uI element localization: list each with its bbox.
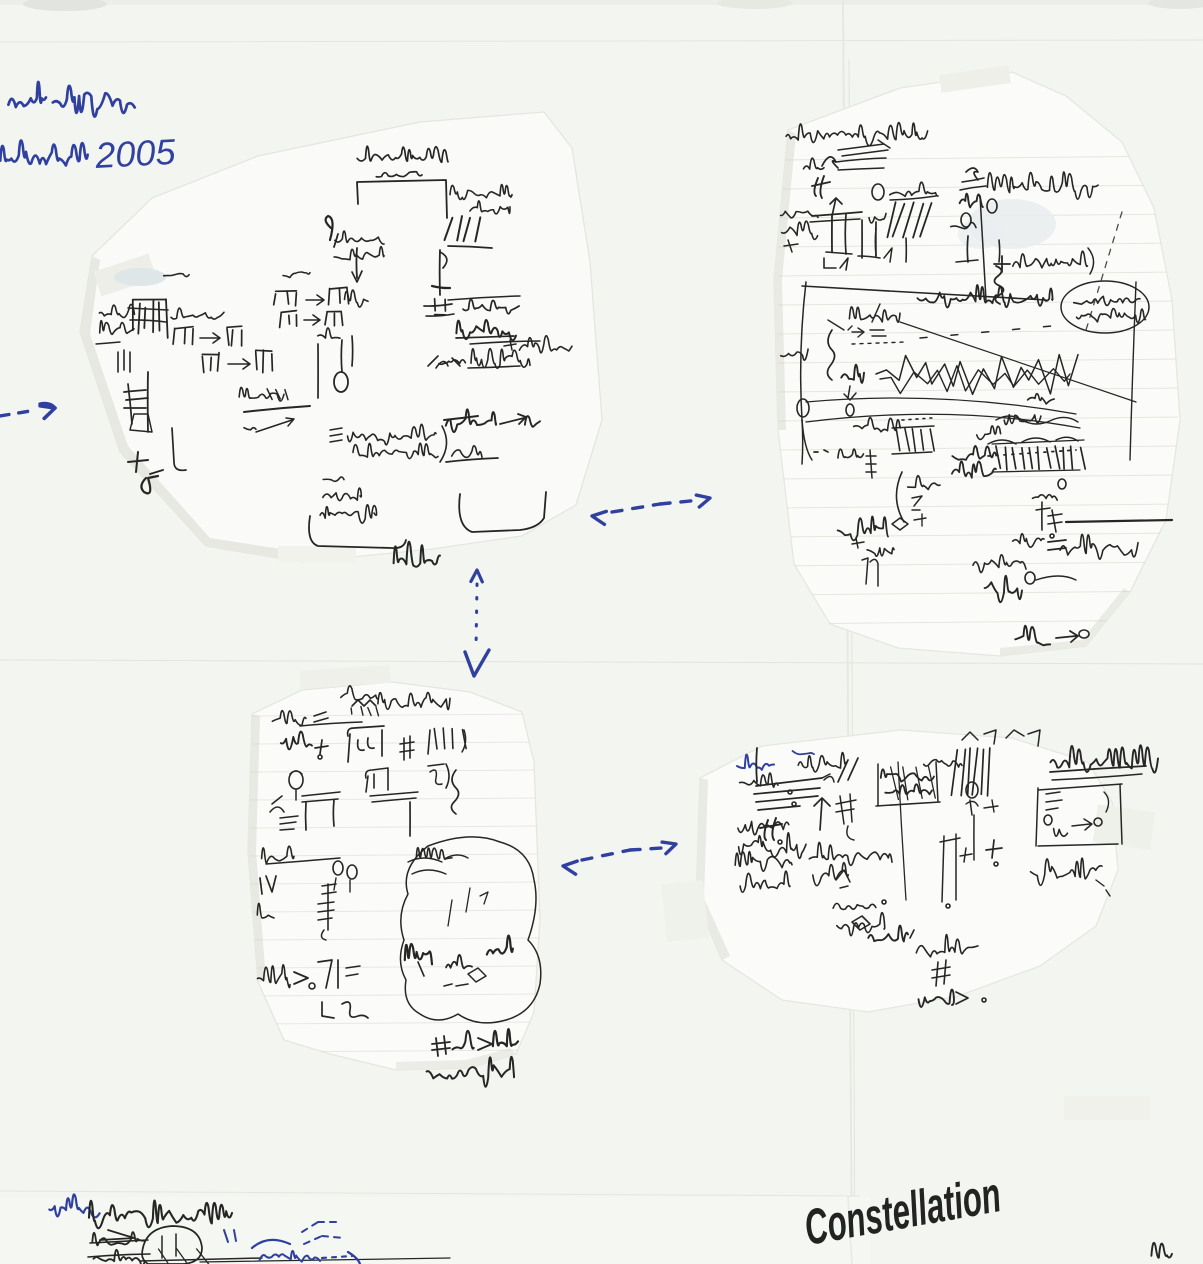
svg-text:2005: 2005 <box>93 131 177 176</box>
